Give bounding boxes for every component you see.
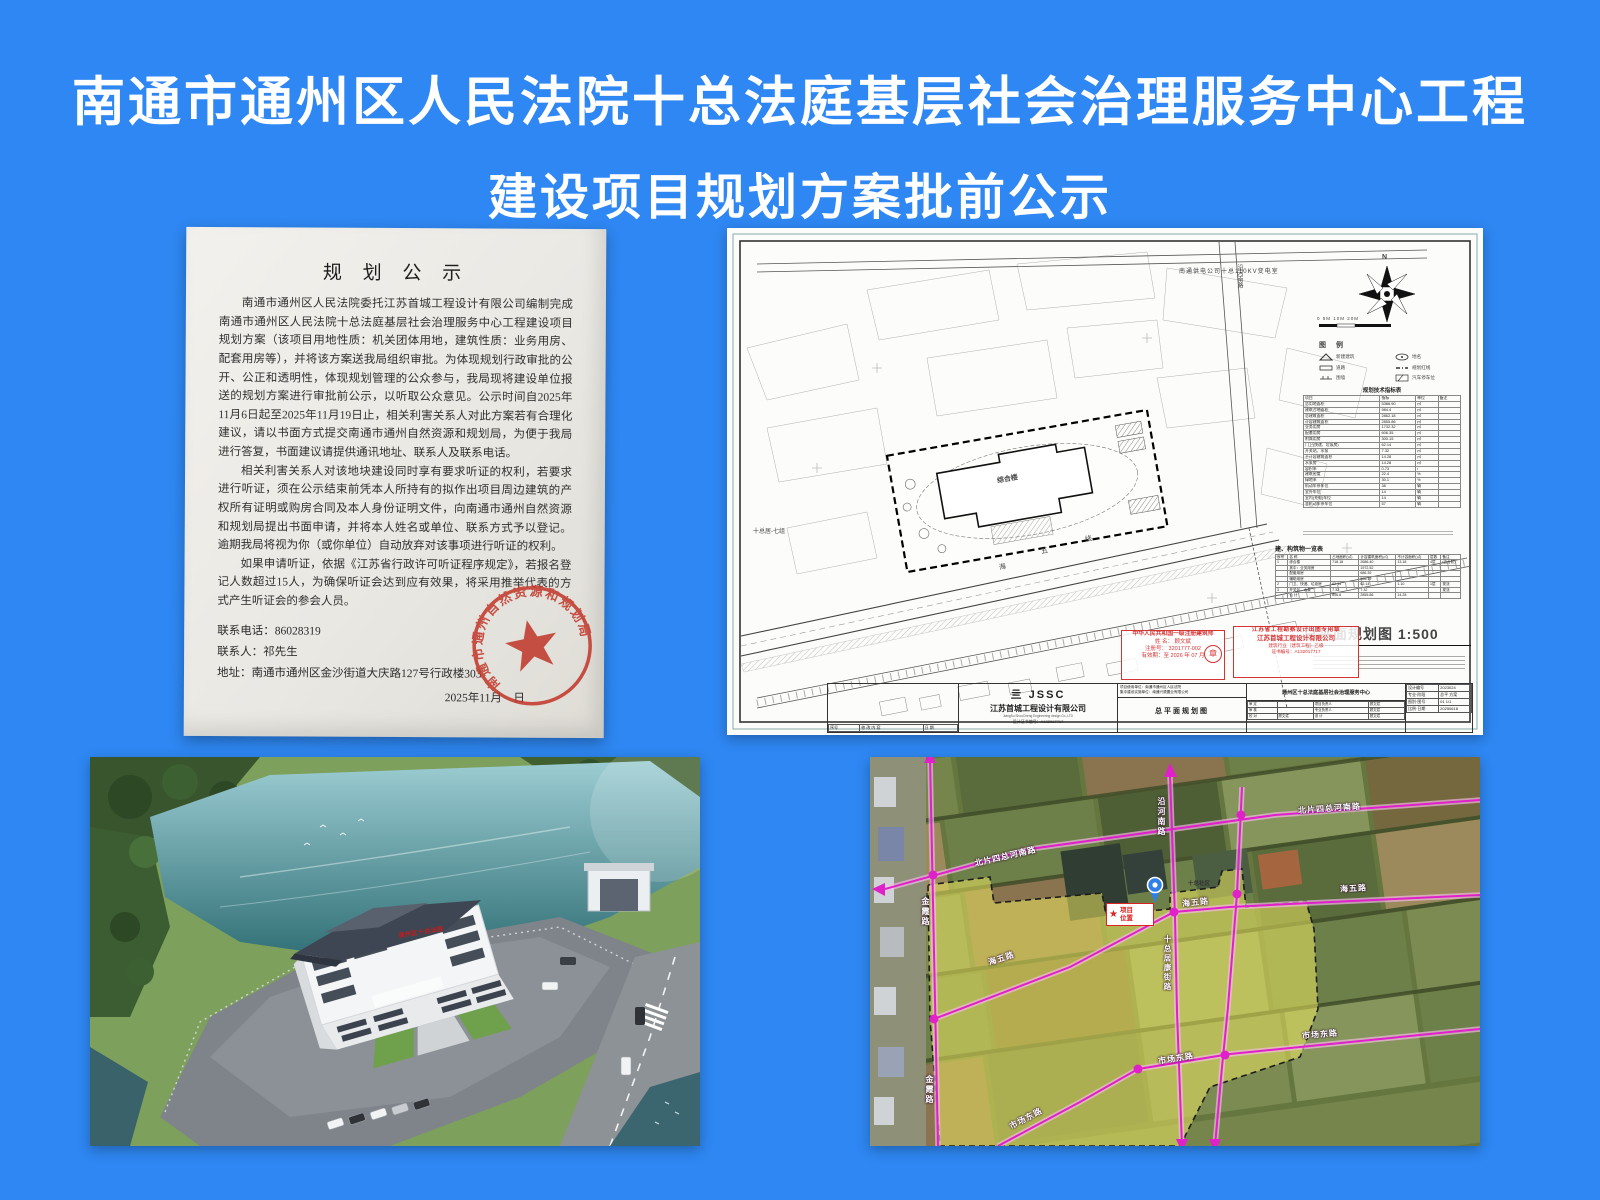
institute-stamp-company: 江苏首城工程设计有限公司 [1234, 635, 1358, 643]
public-notice-page: 南通市通州区人民法院十总法庭基层社会治理服务中心工程 建设项目规划方案批前公示 … [0, 0, 1600, 1200]
legend-item-label: 汽车停车位 [1412, 375, 1435, 381]
table-row: 专业·阶段总平 方案 [1407, 692, 1472, 699]
new-building-icon [1319, 353, 1333, 361]
notice-paragraph-2: 相关利害关系人对该地块建设同时享有要求听证的权利，若要求进行听证，须在公示结束前… [218, 462, 572, 557]
rendering-illustration [90, 757, 700, 1146]
table-cell: 辆 [1416, 501, 1438, 507]
company-logo: 亖 JSSC [959, 686, 1117, 702]
table-cell: 20250618 [1439, 706, 1472, 713]
north-road [757, 250, 1427, 272]
project-site [887, 410, 1167, 572]
structures-table-title: 建、构筑物一览表 [1275, 544, 1461, 553]
table-row: 合 计806.62855.8614.28 [1276, 593, 1461, 598]
table-cell: 校 对 [1248, 714, 1278, 720]
marker-text-line2: 位置 [1120, 915, 1133, 922]
page-title-line2: 建设项目规划方案批前公示 [0, 158, 1600, 229]
table-cell: 非机动车停车位 [1304, 501, 1380, 507]
legend-item-label: 新建建筑 [1336, 354, 1354, 360]
project-name: 通州区十总法庭基层社会治理服务中心 [1247, 684, 1405, 701]
table-cell: 806.6 [1331, 593, 1359, 598]
road-label-haiwu-3: 海五路 [1340, 882, 1368, 894]
table-cell [1441, 593, 1461, 598]
design-institute-stamp: 江苏省工程勘察设计出图专用章 江苏首城工程设计有限公司 建筑行业（建筑工程）乙级… [1233, 626, 1359, 678]
indicator-table: 规划技术指标表 项目指标单位备注总用地面积5386.90㎡建筑占地面积984.4… [1303, 386, 1461, 508]
sheet-info-grid: 设计编号2023024专业·阶段总平 方案图别·图号01 1/1比例·日期202… [1406, 684, 1472, 713]
table-row: 图别·图号01 1/1 [1407, 699, 1472, 706]
architect-stamp-title: 中华人民共和国一级注册建筑师 [1122, 631, 1224, 639]
legend-item-label: 道路 [1336, 365, 1345, 371]
site-plan-sheet: 南通供电公司十总110KV变电室 十总居-七组 海 五 线 沿河南路 综合楼 N… [727, 228, 1483, 735]
table-footnotes [1303, 528, 1453, 538]
institute-stamp-title: 江苏省工程勘察设计出图专用章 [1234, 627, 1358, 635]
structures-table: 建、构筑物一览表 序号名 称占地面积(㎡)计容建筑面积(㎡)不计容面积(㎡)层数… [1275, 544, 1461, 599]
indicator-table-title: 规划技术指标表 [1303, 386, 1461, 394]
table-cell: 合 计 [1288, 593, 1331, 598]
legend: 图 例 新建建筑 地名 道路 规划红线 围墙 汽车停车位 [1319, 340, 1471, 385]
substation-label: 南通供电公司十总110KV变电室 [1179, 266, 1279, 275]
table-cell: 2855.86 [1359, 593, 1396, 598]
legend-title: 图 例 [1319, 340, 1471, 350]
table-cell: 图别·图号 [1407, 699, 1439, 706]
road-label-jinxia-1: 金霞路 [920, 897, 931, 927]
legend-item-label: 规划红线 [1412, 365, 1430, 371]
revision-strip: 序号修 改 内 容日 期 [828, 684, 959, 732]
company-cell: 亖 JSSC 江苏首城工程设计有限公司 JiangSu ShouCheng En… [959, 684, 1118, 732]
table-cell [1429, 593, 1441, 598]
indicator-table-grid: 项目指标单位备注总用地面积5386.90㎡建筑占地面积984.4㎡总建筑面积28… [1303, 395, 1461, 508]
company-name: 江苏首城工程设计有限公司 [959, 703, 1117, 714]
table-row: 校 对顾文斌设 计顾文斌 [1248, 714, 1405, 720]
map-graphics [870, 757, 1480, 1146]
scale-ticks: 0 5M 10M 20M [1317, 316, 1359, 321]
architectural-rendering: 通州区十总法庭 [90, 757, 700, 1146]
revision-grid: 序号修 改 内 容日 期 [828, 724, 958, 732]
project-cell: 通州区十总法庭基层社会治理服务中心 审 定项目负责人顾文斌审 核专业负责人顾文斌… [1247, 684, 1406, 732]
road-icon [1319, 364, 1333, 372]
scale-bar [1319, 324, 1391, 327]
architect-seal-icon: 章 [1204, 645, 1222, 663]
architect-stamp-name: 姓 名： 顾文斌 [1122, 639, 1224, 646]
notice-document-photo: 规 划 公 示 南通市通州区人民法院委托江苏首城工程设计有限公司编制完成南通市通… [184, 227, 607, 738]
table-cell: 总平 方案 [1439, 692, 1472, 699]
star-icon: ★ [1109, 910, 1118, 920]
units-cell: 项目使用单位：南通市通州区人民法院 集中建设实施单位：南通兴顺置业有限公司 总平… [1118, 684, 1247, 732]
legend-item-label: 围墙 [1336, 375, 1345, 381]
legend-item-label: 地名 [1412, 354, 1421, 360]
notice-title: 规 划 公 示 [219, 257, 573, 286]
drawing-name: 总平面规划图 [1118, 698, 1246, 724]
project-location-marker: ★ 项目 位置 [1106, 903, 1154, 926]
official-seal-icon: 南通市通州自然资源和规划局 [454, 568, 610, 724]
red-line-icon [1395, 364, 1409, 372]
road-label-jinxia-2: 金霞路 [924, 1075, 935, 1105]
road-label-yanhe: 沿河南路 [1156, 797, 1167, 837]
fence-icon [1319, 374, 1333, 382]
table-row: 比例·日期20250618 [1407, 706, 1472, 713]
east-road-label: 沿河南路 [1235, 264, 1244, 288]
architect-stamp: 中华人民共和国一级注册建筑师 姓 名： 顾文斌 注册号： 3201777-002… [1121, 630, 1225, 680]
table-row: 2门卫、快递、垃圾房62.1462.141.101层现浇 [1276, 582, 1461, 587]
zone-label: 十总社区 [1188, 879, 1210, 887]
table-cell: 14.28 [1396, 593, 1429, 598]
table-cell: 01 1/1 [1439, 699, 1472, 706]
table-cell: 顾文斌 [1368, 714, 1404, 720]
table-cell [1276, 593, 1288, 598]
signature-grid: 审 定项目负责人顾文斌审 核专业负责人顾文斌校 对顾文斌设 计顾文斌 [1247, 701, 1405, 720]
compass-windrose-icon [1359, 266, 1415, 322]
parking-icon [1395, 374, 1409, 382]
road-label-jukang: 十总居康街路 [1162, 935, 1173, 992]
town-strip [870, 757, 926, 1146]
build-unit: 集中建设实施单位：南通兴顺置业有限公司 [1120, 690, 1244, 695]
structures-table-grid: 序号名 称占地面积(㎡)计容建筑面积(㎡)不计容面积(㎡)层数备注1综合楼718… [1275, 554, 1461, 599]
table-cell: 顾文斌 [1277, 714, 1313, 720]
table-cell: 修 改 内 容 [860, 725, 923, 732]
table-row: 设计编号2023024 [1407, 685, 1472, 692]
gate-house [584, 863, 654, 911]
table-row: 序号修 改 内 容日 期 [829, 725, 958, 732]
table-cell: 设计编号 [1407, 685, 1439, 692]
table-cell [1438, 501, 1460, 507]
table-cell: 2023024 [1439, 685, 1472, 692]
table-row: 非机动车停车位57辆 [1304, 501, 1461, 507]
place-name-icon [1395, 353, 1409, 361]
table-cell: 日 期 [923, 725, 957, 732]
table-cell: 57 [1380, 501, 1416, 507]
table-cell: 专业·阶段 [1407, 692, 1439, 699]
sheet-info-cell: 设计编号2023024专业·阶段总平 方案图别·图号01 1/1比例·日期202… [1406, 684, 1472, 732]
table-cell: 比例·日期 [1407, 706, 1439, 713]
notice-paragraph-1: 南通市通州区人民法院委托江苏首城工程设计有限公司编制完成南通市通州区人民法院十总… [218, 294, 573, 463]
table-cell: 序号 [829, 725, 860, 732]
compass-n-label: N [1382, 254, 1387, 261]
company-cert: 设计证书编号：A132017717 [959, 719, 1117, 725]
institute-stamp-cert: 证书编号：A132017717 [1234, 649, 1358, 655]
title-block: 序号修 改 内 容日 期 亖 JSSC 江苏首城工程设计有限公司 JiangSu… [827, 683, 1473, 733]
marker-text-line1: 项目 [1120, 907, 1133, 914]
satellite-map: 北片四总河南路 北片四总河南路 沿河南路 金霞路 金霞路 十总居康街路 海五路 … [870, 757, 1480, 1146]
table-cell: 设 计 [1313, 714, 1368, 720]
parcel-label: 十总居-七组 [753, 526, 785, 535]
company-name-en: JiangSu ShouCheng Engineering design Co.… [959, 714, 1117, 718]
page-title-line1: 南通市通州区人民法院十总法庭基层社会治理服务中心工程 [0, 60, 1600, 136]
